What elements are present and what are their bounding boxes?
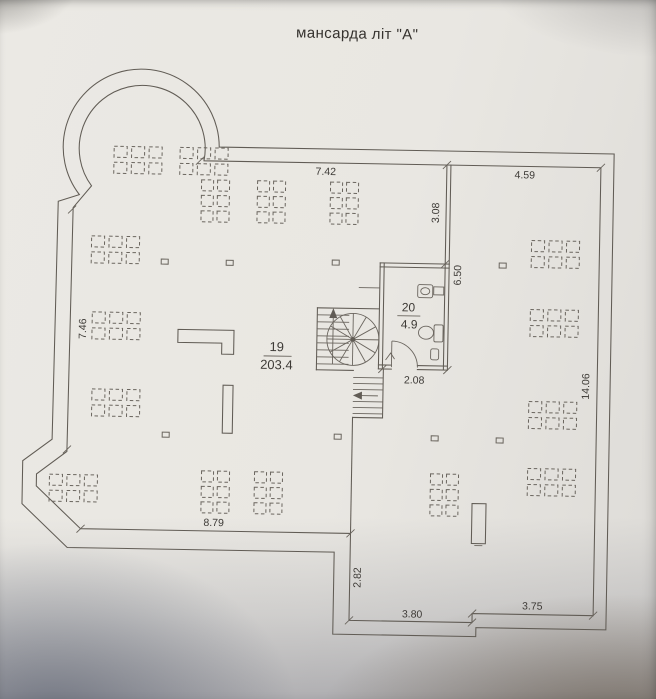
- stair-direction-arrow-icon: [353, 391, 378, 399]
- door-arc: [385, 341, 417, 368]
- room-19-label: 19 203.4: [260, 339, 293, 373]
- roof-window-symbols: [49, 145, 581, 519]
- dim-top-right: 4.59: [514, 169, 535, 181]
- outer-wall-outline: [20, 67, 616, 639]
- chimney: [471, 504, 486, 546]
- sink-icon: [418, 285, 444, 298]
- toilet-icon: [418, 325, 443, 342]
- dim-right: 14.06: [580, 373, 592, 400]
- room-20-number: 20: [402, 300, 416, 314]
- dim-left: 7.46: [77, 318, 89, 339]
- bidet-icon: [431, 349, 439, 360]
- bathroom-walls: [357, 263, 449, 371]
- room-19-area: 203.4: [260, 357, 293, 373]
- room-20-label: 20 4.9: [397, 300, 421, 331]
- dim-bottom: 8.79: [203, 517, 224, 529]
- dim-ext-bottom-right: 3.75: [522, 600, 543, 612]
- dim-ext-left: 2.82: [352, 567, 364, 588]
- dimension-ticks: [60, 154, 605, 628]
- floor-plan-drawing: мансарда літ "А": [0, 0, 656, 699]
- dim-wall-lower: 6.50: [452, 265, 464, 286]
- spiral-staircase: [316, 308, 379, 371]
- dim-bath-width: 2.08: [404, 374, 425, 386]
- photo-of-floor-plan: мансарда літ "А": [0, 0, 656, 699]
- plan-title: мансарда літ "А": [296, 24, 418, 43]
- room-19-number: 19: [269, 339, 284, 354]
- straight-staircase: [353, 368, 384, 418]
- wall-stub: [222, 385, 233, 433]
- dim-top-left: 7.42: [315, 166, 336, 178]
- l-shaped-wall: [178, 329, 234, 354]
- dim-wall-upper: 3.08: [430, 202, 442, 223]
- room-20-area: 4.9: [401, 317, 418, 331]
- stairwell-wall: [351, 417, 353, 533]
- dim-ext-bottom-left: 3.80: [402, 608, 423, 620]
